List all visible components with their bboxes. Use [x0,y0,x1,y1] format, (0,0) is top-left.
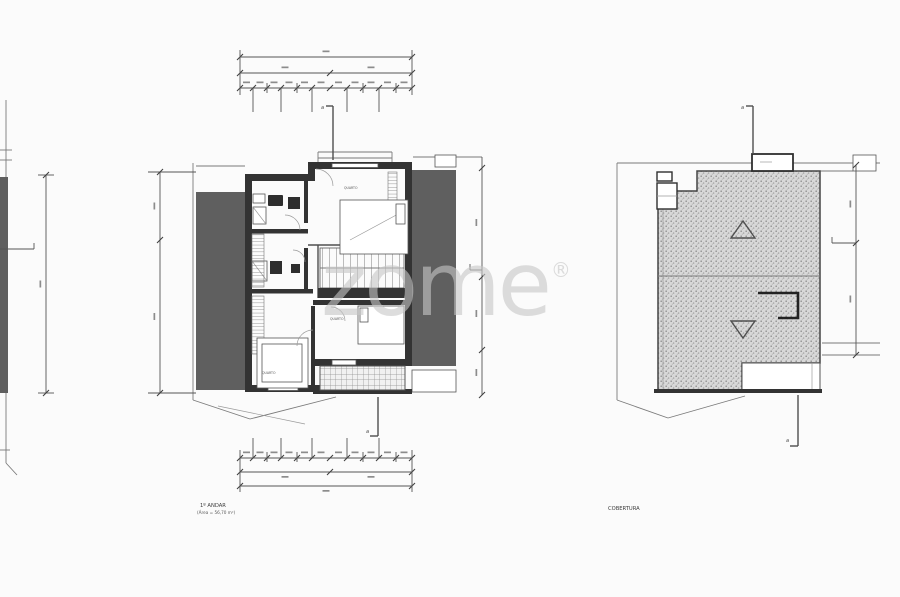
floor-top-dimensions [237,50,415,112]
floor-left-dimension [148,169,196,396]
section-label-top: a [741,105,744,111]
floor-bottom-dimensions [237,438,415,492]
staircase [318,248,406,298]
right-neighbor-mass [412,170,456,366]
right-lower-terrace [412,370,456,392]
left-neighbor-mass [196,192,245,390]
room-label: QUARTO [344,186,358,190]
section-label-top: a [321,105,324,111]
section-label-bottom: a [366,429,369,435]
far-left-dimension [38,172,54,396]
floor-right-dimension [470,157,485,398]
roof-title: COBERTURA [608,506,640,512]
section-label-bottom: a [786,438,789,444]
floor-title: 1º ANDAR [200,503,226,509]
room-label: QUARTO [262,371,276,375]
room-label: QUARTO [330,317,344,321]
floor-title-block: 1º ANDAR (Área = 56,70 m²) [197,503,236,515]
left-edge-context [0,100,54,475]
plans-svg: QUARTO QUARTO QUARTO a a [0,0,900,597]
floor-plan: QUARTO QUARTO QUARTO a a [148,50,485,515]
roof-right-dimension [832,162,859,358]
architectural-drawing-sheet: QUARTO QUARTO QUARTO a a [0,0,900,597]
balcony-hatch [320,366,405,390]
floor-area: (Área = 56,70 m²) [197,510,236,515]
roof-plan: a a COBERTURA [608,105,880,512]
roof-surface [658,171,820,391]
